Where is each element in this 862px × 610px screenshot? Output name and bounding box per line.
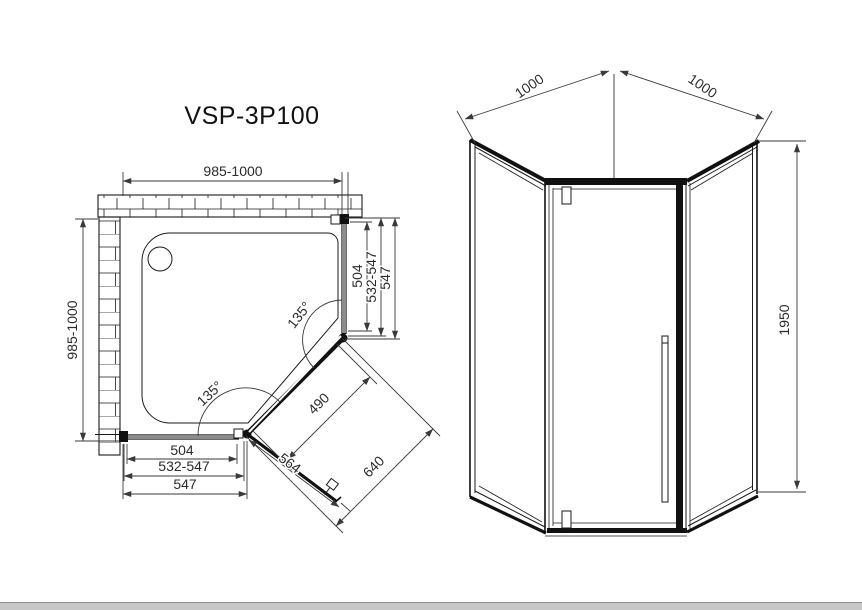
elevation-view: 1000 1000 1950 <box>457 70 806 536</box>
svg-text:985-1000: 985-1000 <box>203 163 262 179</box>
svg-text:640: 640 <box>360 452 388 480</box>
model-title: VSP-3P100 <box>184 102 319 130</box>
plan-view: VSP-3P100 <box>64 102 440 533</box>
drain-icon <box>148 247 172 271</box>
dim-door-diagonals: 490 564 640 <box>246 339 440 533</box>
bottom-frame-bar <box>547 528 687 533</box>
elevation-door-section <box>545 178 690 536</box>
svg-text:1000: 1000 <box>685 71 720 102</box>
shower-tray <box>142 233 338 423</box>
dim-plan-bottom-chain: 504 532-547 547 <box>123 441 247 499</box>
svg-text:547: 547 <box>173 476 197 492</box>
svg-text:490: 490 <box>305 389 333 417</box>
elevation-left-panel <box>470 140 546 533</box>
dim-plan-right-chain: 504 532-547 547 <box>345 218 400 339</box>
dim-elevation-height: 1950 <box>758 141 806 492</box>
dim-elevation-widths: 1000 1000 <box>457 70 772 143</box>
svg-text:504: 504 <box>170 442 194 458</box>
svg-text:532-547: 532-547 <box>158 458 210 474</box>
wall-top <box>98 195 362 217</box>
svg-text:547: 547 <box>377 266 393 290</box>
hinge-bottom-icon <box>562 511 571 528</box>
door-stile <box>676 185 683 530</box>
elevation-right-panel <box>687 141 759 532</box>
hinge-top-icon <box>562 187 571 204</box>
wall-bracket <box>331 215 340 224</box>
wall-left <box>99 217 120 455</box>
angle-label-top: 135° <box>284 299 314 332</box>
technical-drawing-page: VSP-3P100 <box>0 0 862 610</box>
svg-text:1950: 1950 <box>776 304 792 335</box>
svg-text:1000: 1000 <box>512 70 547 101</box>
door-handle-icon <box>662 336 668 502</box>
wall-bracket <box>119 431 128 442</box>
top-frame-bar <box>545 178 687 185</box>
door-closed <box>247 336 343 434</box>
bottom-scrollbar[interactable] <box>0 602 862 610</box>
svg-text:985-1000: 985-1000 <box>64 300 80 359</box>
shower-enclosure-drawing: VSP-3P100 <box>0 0 862 610</box>
